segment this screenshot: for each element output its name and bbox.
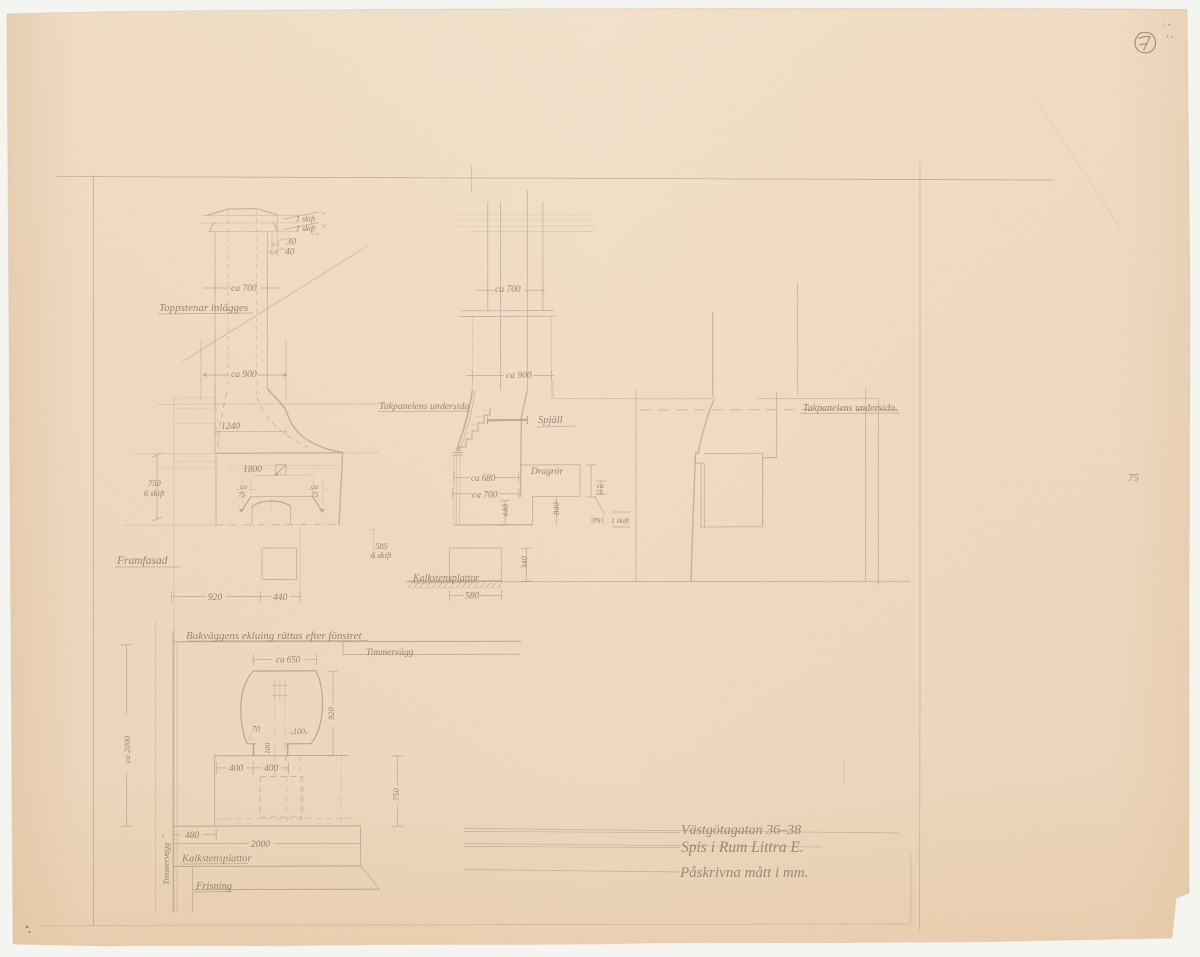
svg-text:Västgötagatan 36–38: Västgötagatan 36–38 [681, 823, 801, 838]
svg-text:100: 100 [263, 743, 272, 755]
svg-text:1 skift: 1 skift [296, 224, 316, 233]
svg-text:ca 2000: ca 2000 [122, 735, 132, 763]
svg-text:~: ~ [159, 833, 168, 838]
svg-text:ca 680: ca 680 [471, 473, 496, 483]
svg-text:ca 700: ca 700 [472, 491, 498, 501]
svg-text:840: 840 [551, 502, 561, 516]
svg-text:Framfasad: Framfasad [116, 555, 168, 567]
svg-text:Takpanelens undersida.: Takpanelens undersida. [803, 403, 898, 414]
svg-text:750: 750 [148, 478, 162, 488]
svg-text:Timmervägg: Timmervägg [366, 648, 414, 658]
svg-text:Spis i Rum Littra E.: Spis i Rum Littra E. [681, 839, 804, 856]
svg-text:Timmervägg: Timmervägg [161, 843, 171, 886]
svg-text:Kalkstensplattor: Kalkstensplattor [412, 573, 479, 584]
svg-text:Takpanelens undersida: Takpanelens undersida [379, 401, 469, 412]
svg-text:480: 480 [185, 831, 200, 841]
svg-text:1 skift: 1 skift [296, 215, 316, 224]
svg-text:30: 30 [286, 238, 297, 248]
svg-text:750: 750 [391, 788, 401, 802]
svg-text:40: 40 [285, 248, 295, 258]
svg-text:1240: 1240 [221, 422, 240, 432]
svg-text:2000: 2000 [251, 840, 270, 850]
svg-text:75: 75 [596, 489, 604, 497]
svg-text:400: 400 [229, 764, 244, 774]
svg-text:ca 900: ca 900 [506, 371, 532, 381]
svg-text:ca 900: ca 900 [231, 370, 257, 380]
svg-text:Spjäll: Spjäll [538, 415, 563, 426]
svg-text:Frisning: Frisning [195, 881, 232, 892]
svg-text:Dragrör: Dragrör [530, 467, 564, 477]
svg-text:Kalkstensplattor: Kalkstensplattor [181, 854, 252, 865]
svg-text:1 skift: 1 skift [611, 516, 630, 525]
svg-text:400: 400 [264, 764, 279, 774]
svg-text:75: 75 [238, 490, 246, 499]
svg-text:75: 75 [1128, 472, 1140, 484]
svg-text:580: 580 [465, 592, 480, 602]
svg-text:440: 440 [273, 593, 288, 603]
svg-text:920: 920 [326, 707, 336, 721]
svg-text:ca 700: ca 700 [495, 285, 521, 295]
svg-text:75: 75 [311, 490, 319, 499]
svg-text:Toppstenar inlägges: Toppstenar inlägges [159, 302, 248, 314]
svg-text:1800: 1800 [243, 465, 262, 475]
svg-text:ca 650: ca 650 [276, 655, 301, 665]
svg-text:920: 920 [208, 593, 223, 603]
svg-text:Påskrivna mått i mm.: Påskrivna mått i mm. [679, 865, 808, 881]
svg-text:100: 100 [293, 727, 305, 736]
svg-text:340: 340 [519, 556, 529, 571]
svg-text:440: 440 [500, 504, 510, 518]
svg-text:6 skift: 6 skift [371, 550, 392, 560]
svg-text:75: 75 [593, 516, 601, 525]
svg-text:6 skift: 6 skift [144, 488, 165, 498]
svg-text:ca 700: ca 700 [231, 284, 257, 294]
svg-text:70: 70 [252, 725, 260, 734]
